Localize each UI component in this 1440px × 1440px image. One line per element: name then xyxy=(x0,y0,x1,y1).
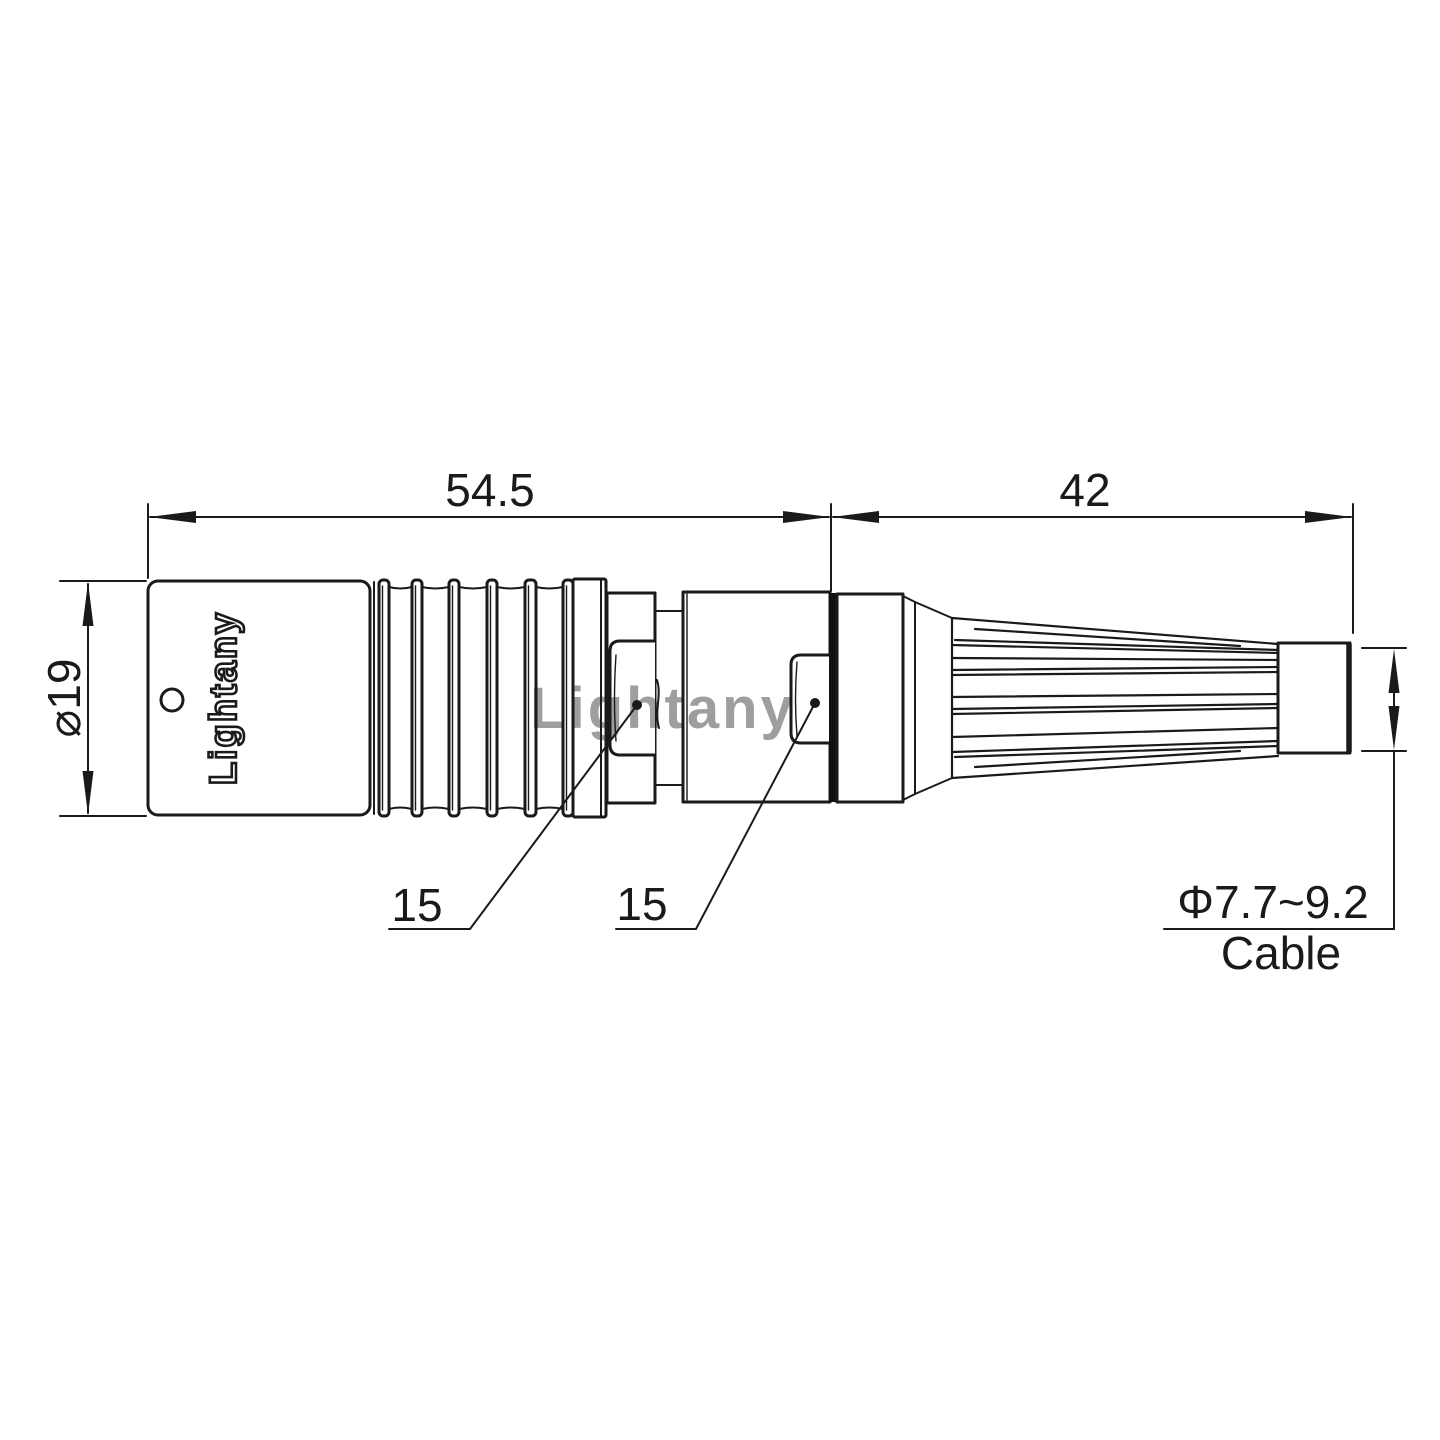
len42-label: 42 xyxy=(1059,464,1110,516)
watermark-text: Lightany xyxy=(530,676,796,741)
len545-label: 54.5 xyxy=(445,464,535,516)
dia19-label: ⌀19 xyxy=(38,659,90,738)
rib xyxy=(412,580,422,816)
cable-arrow-down xyxy=(1389,706,1400,750)
cable-arrow-up xyxy=(1389,649,1400,693)
cable-text-label: Cable xyxy=(1221,927,1341,979)
dia19-arrow-up xyxy=(83,582,94,626)
brand-engraving: Lightany xyxy=(203,611,245,785)
len545-arrow-left xyxy=(149,511,196,523)
cable-ticks xyxy=(1362,648,1406,751)
dim-length-54-5: 54.5 xyxy=(148,464,830,578)
len42-extension-lines xyxy=(831,504,1353,633)
rib xyxy=(487,580,497,816)
len42-arrow-right xyxy=(1305,511,1352,523)
dim-diameter-19: ⌀19 xyxy=(38,581,146,816)
rib xyxy=(449,580,459,816)
cone-edges xyxy=(903,596,952,800)
technical-drawing-page: Lightany Lightany ⌀19 54.5 42 xyxy=(0,0,1440,1440)
back-nut xyxy=(837,594,903,802)
relief-fins xyxy=(952,618,1278,778)
dim-length-42: 42 xyxy=(831,464,1353,633)
len42-arrow-left xyxy=(832,511,879,523)
note-front-label: 15 xyxy=(391,879,442,931)
rib xyxy=(379,580,389,816)
cable-range-label: Φ7.7~9.2 xyxy=(1177,876,1368,928)
connector-drawing: Lightany Lightany ⌀19 54.5 42 xyxy=(0,0,1440,1440)
strain-relief xyxy=(903,596,1278,800)
body-hole xyxy=(161,689,183,711)
note-back-label: 15 xyxy=(616,878,667,930)
dia19-arrow-down xyxy=(83,771,94,815)
len545-arrow-right xyxy=(783,511,830,523)
cable-ferrule xyxy=(1278,643,1350,753)
